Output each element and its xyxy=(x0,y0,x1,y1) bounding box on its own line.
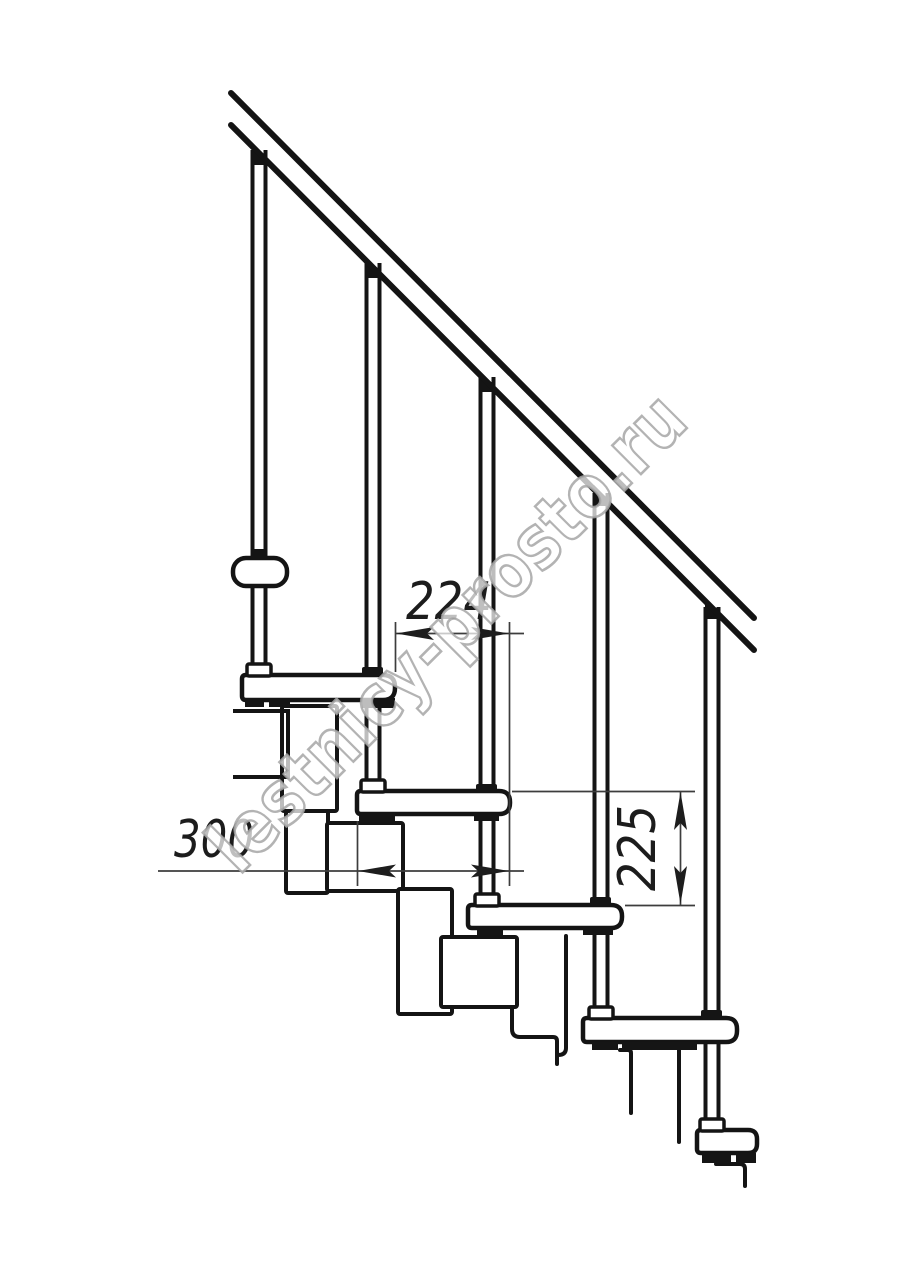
stair-drawing-canvas: 224 300 225 lestnicy-prosto.ru xyxy=(0,0,914,1280)
tread-2 xyxy=(357,791,510,814)
dimension-label-225: 225 xyxy=(608,805,668,891)
baluster-5 xyxy=(706,607,719,1132)
tread-4 xyxy=(583,1018,737,1042)
tread-3 xyxy=(468,905,622,928)
dimension-225: 225 xyxy=(512,791,695,906)
rail-wedge-icon xyxy=(252,549,265,559)
landing-rail-clamp xyxy=(233,558,287,586)
staircase-drawing-page: 224 300 225 lestnicy-prosto.ru xyxy=(0,0,914,1280)
baluster-4 xyxy=(595,493,608,1019)
support-block-2 xyxy=(327,823,403,891)
tread-5-partial xyxy=(697,1130,757,1153)
baluster-1 xyxy=(253,150,266,676)
support-block-3 xyxy=(441,937,517,1007)
